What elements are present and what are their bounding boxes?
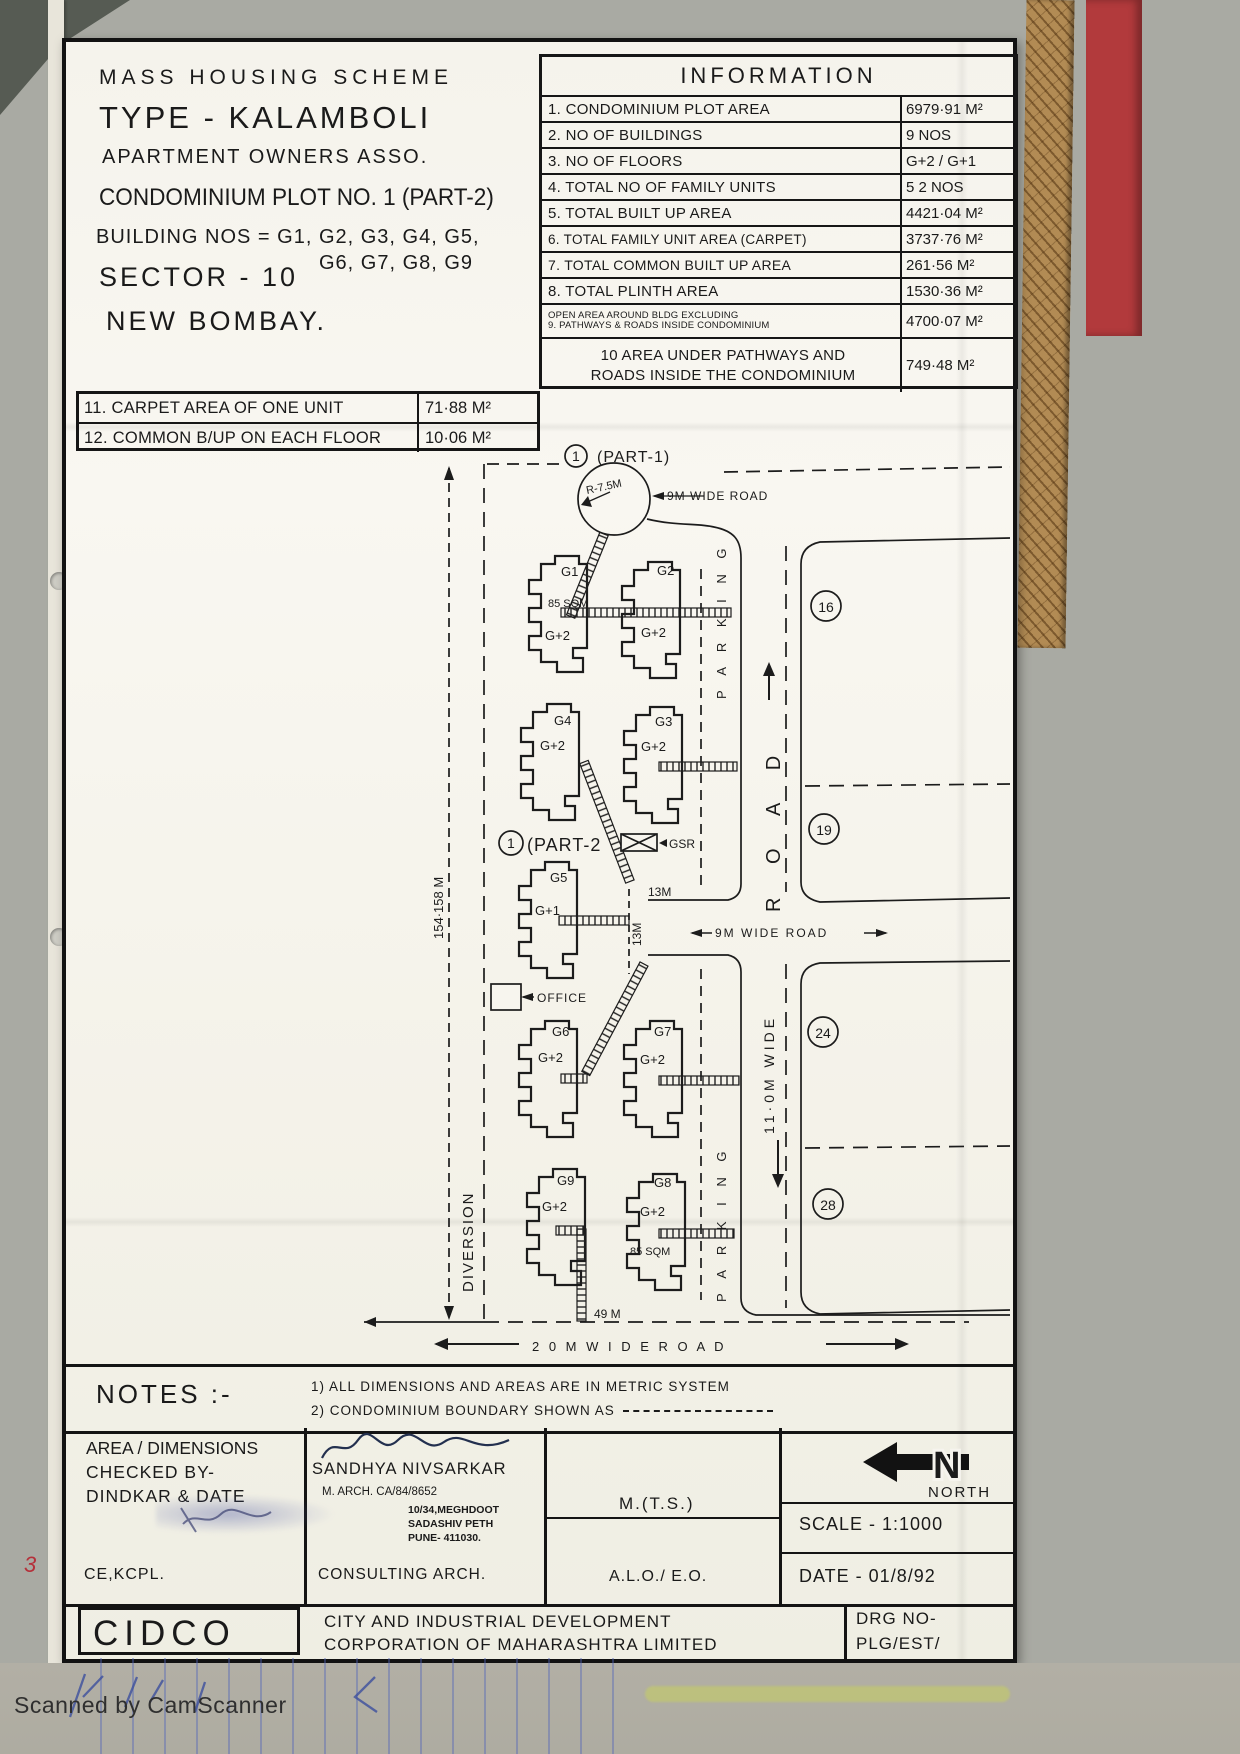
info-value: 3737·76 M² [900,227,1015,251]
north-label: NORTH [928,1484,991,1501]
cidco-logo-box: CIDCO [78,1607,300,1655]
plot-divider-dashed [805,1146,1010,1148]
plot-16: 16 [818,599,834,615]
building-floors: G+2 [545,628,570,643]
checked-by-line1: AREA / DIMENSIONS [86,1438,258,1459]
building-nos: BUILDING NOS = G1, G2, G3, G4, G5, [96,226,480,249]
info-value: 6979·91 M² [900,97,1015,121]
sector: SECTOR - 10 [99,262,298,293]
pathways-group [556,532,739,1321]
condo-title: CONDOMINIUM PLOT NO. 1 (PART-2) [99,184,494,212]
signature-scribble [161,1502,291,1538]
info-row: 5. TOTAL BUILT UP AREA 4421·04 M² [542,199,1015,225]
org-abbr: CIDCO [93,1614,236,1654]
building-area: 85 SQM [548,598,588,610]
building-floors: G+2 [640,1204,665,1219]
info-label: 4. TOTAL NO OF FAMILY UNITS [548,175,776,199]
plot-divider-dashed [805,784,1010,786]
info-label: 11. CARPET AREA OF ONE UNIT [84,394,344,422]
gsr-label: GSR [669,837,695,851]
parking-label: P A R K I N G [714,542,729,699]
pathway-hatch [559,916,629,925]
drg-no-label: DRG NO- [856,1609,937,1629]
info-value: 5 2 NOS [900,175,1015,199]
road-word-label: R O A D [763,742,785,912]
office-box [491,984,521,1010]
divider [779,1552,1013,1554]
plot-28: 28 [820,1197,836,1213]
red-edge-artifact [1086,0,1142,336]
scanned-page: MASS HOUSING SCHEME TYPE - KALAMBOLI APA… [0,0,1240,1754]
architect-address3: PUNE- 411030. [408,1532,481,1544]
info-row: 4. TOTAL NO OF FAMILY UNITS 5 2 NOS [542,173,1015,199]
architect-signature [314,1430,524,1464]
arrow-left-icon [521,993,533,1001]
info-label: 2. NO OF BUILDINGS [548,123,703,147]
architect-name: SANDHYA NIVSARKAR [312,1460,507,1479]
boundary-dash-sample [623,1410,773,1412]
info-label: 1. CONDOMINIUM PLOT AREA [548,97,770,121]
checked-sign-label: CE,KCPL. [84,1566,165,1584]
info-value: 4700·07 M² [900,305,1015,337]
pathway-hatch [582,962,648,1076]
checked-by-line2: CHECKED BY- [86,1462,215,1483]
building-floors: G+2 [641,739,666,754]
road-mid-label: 9M WIDE ROAD [715,926,828,940]
date-label: DATE - 01/8/92 [799,1566,936,1587]
info-label: 8. TOTAL PLINTH AREA [548,279,719,303]
svg-text:N: N [933,1445,960,1487]
building-id: G1 [561,564,578,579]
info-label: 6. TOTAL FAMILY UNIT AREA (CARPET) [548,227,807,251]
divider [844,1604,847,1659]
alo-label: A.L.O./ E.O. [609,1568,707,1586]
parking-label: P A R K I N G [714,1145,729,1302]
arrow-right-icon [876,929,888,937]
info-value: 749·48 M² [900,339,1015,392]
arrow-left-icon [434,1338,448,1350]
arrow-down-icon [444,1306,454,1320]
building-floors: G+2 [640,1052,665,1067]
info-row: 10 AREA UNDER PATHWAYS ANDROADS INSIDE T… [542,337,1015,392]
handwritten-number: 3 [24,1552,36,1578]
road-top-label: 9M WIDE ROAD [667,489,768,503]
arrow-icon [581,496,592,507]
arrow-right-icon [895,1338,909,1350]
info-label: 5. TOTAL BUILT UP AREA [548,201,732,225]
part1-label: (PART-1) [597,449,670,466]
info-value: 9 NOS [900,123,1015,147]
dim-13m-h: 13M [648,885,671,899]
building-id: G7 [654,1024,671,1039]
building-area: 85 SQM [630,1246,670,1258]
arrow-left-icon [690,929,702,937]
building-id: G4 [554,713,571,728]
mts-label: M.(T.S.) [619,1494,695,1514]
part2-number: 1 [507,835,515,851]
info-value: 1530·36 M² [900,279,1015,303]
part1-number: 1 [572,448,580,464]
camscanner-footer: Scanned by CamScanner [14,1692,287,1719]
road-edge-dashed [724,467,1010,472]
info-label: 10 AREA UNDER PATHWAYS ANDROADS INSIDE T… [548,339,898,392]
hatched-edge-artifact [1017,0,1074,648]
note-1: 1) ALL DIMENSIONS AND AREAS ARE IN METRI… [311,1379,730,1394]
part2-label: (PART-2 [527,835,601,855]
building-id: G6 [552,1024,569,1039]
highlight-smear [645,1686,1010,1702]
info-value: 261·56 M² [900,253,1015,277]
road-width-label: 11·0M WIDE [761,1015,777,1134]
dim-49m: 49 M [594,1307,621,1321]
org-name-line2: CORPORATION OF MAHARASHTRA LIMITED [324,1635,718,1655]
info-row: 7. TOTAL COMMON BUILT UP AREA 261·56 M² [542,251,1015,277]
info-label: 3. NO OF FLOORS [548,149,683,173]
org-name-line1: CITY AND INDUSTRIAL DEVELOPMENT [324,1612,671,1632]
dim-left-label: 154·158 M [431,877,446,939]
road-curb [648,955,1010,1315]
notes-box: NOTES :- 1) ALL DIMENSIONS AND AREAS ARE… [66,1364,1013,1434]
arrow-left-icon [652,492,664,500]
scale-label: SCALE - 1:1000 [799,1514,943,1535]
dim-13m-v: 13M [630,923,644,946]
info-value: 71·88 M² [417,394,537,422]
association: APARTMENT OWNERS ASSO. [102,146,428,169]
arrow-left-icon [364,1317,376,1327]
arrow-left-icon [659,839,667,847]
building-id: G9 [557,1173,574,1188]
road-bottom-label: 2 0 M W I D E R O A D [532,1339,726,1354]
building-floors: G+2 [538,1050,563,1065]
info-row: 1. CONDOMINIUM PLOT AREA 6979·91 M² [542,95,1015,121]
building-floors: G+2 [540,738,565,753]
information-title: INFORMATION [542,57,1015,95]
building-id: G8 [654,1175,671,1190]
notes-label: NOTES :- [96,1379,233,1410]
building-floors: G+2 [641,625,666,640]
north-arrow-icon: N [861,1436,1001,1488]
architect-role: CONSULTING ARCH. [318,1566,486,1584]
pathway-hatch [659,762,737,771]
info-value: G+2 / G+1 [900,149,1015,173]
divider [544,1428,547,1604]
info-row: 8. TOTAL PLINTH AREA 1530·36 M² [542,277,1015,303]
info-value: 4421·04 M² [900,201,1015,225]
pathway-hatch [659,1076,739,1085]
site-plan: 1 (PART-1) 1 (PART-2 R-7.5M 9M WIDE ROAD… [64,434,1015,1364]
pathway-hatch [561,1074,587,1083]
info-label: OPEN AREA AROUND BLDG EXCLUDING9. PATHWA… [548,305,770,337]
building-nos-2: G6, G7, G8, G9 [319,252,473,275]
note-2: 2) CONDOMINIUM BOUNDARY SHOWN AS [311,1403,773,1418]
information-table: INFORMATION 1. CONDOMINIUM PLOT AREA 697… [539,54,1018,389]
arrow-up-icon [444,466,454,480]
building-id: G2 [657,563,674,578]
info-row: 3. NO OF FLOORS G+2 / G+1 [542,147,1015,173]
info-row: 11. CARPET AREA OF ONE UNIT 71·88 M² [79,394,537,422]
info-label: 7. TOTAL COMMON BUILT UP AREA [548,253,791,277]
divider [544,1517,779,1519]
info-row: OPEN AREA AROUND BLDG EXCLUDING9. PATHWA… [542,303,1015,337]
plot-24: 24 [815,1025,831,1041]
architect-address1: 10/34,MEGHDOOT [408,1504,499,1516]
building-floors: G+2 [542,1199,567,1214]
plot-outline [801,961,1010,1314]
architect-qualification: M. ARCH. CA/84/8652 [322,1486,437,1498]
plot-19: 19 [816,822,832,838]
divider [779,1428,782,1604]
diversion-label: DIVERSION [460,1191,477,1292]
drawing-sheet: MASS HOUSING SCHEME TYPE - KALAMBOLI APA… [62,38,1017,1663]
cidco-row: CIDCO CITY AND INDUSTRIAL DEVELOPMENT CO… [66,1604,1013,1659]
architect-address2: SADASHIV PETH [408,1518,493,1530]
info-row: 2. NO OF BUILDINGS 9 NOS [542,121,1015,147]
pathway-hatch [580,760,634,883]
office-label: OFFICE [537,991,587,1005]
city: NEW BOMBAY. [106,306,327,337]
building-id: G5 [550,870,567,885]
arrow-down-icon [772,1174,784,1188]
arrow-up-icon [763,662,775,676]
divider [779,1502,1013,1504]
info-row: 6. TOTAL FAMILY UNIT AREA (CARPET) 3737·… [542,225,1015,251]
building-id: G3 [655,714,672,729]
pathway-hatch [577,1229,586,1321]
building-floors: G+1 [535,903,560,918]
scheme-title: MASS HOUSING SCHEME [99,66,453,90]
drg-no-value: PLG/EST/ [856,1634,941,1654]
scheme-type: TYPE - KALAMBOLI [99,100,431,136]
building-G2 [622,562,680,678]
